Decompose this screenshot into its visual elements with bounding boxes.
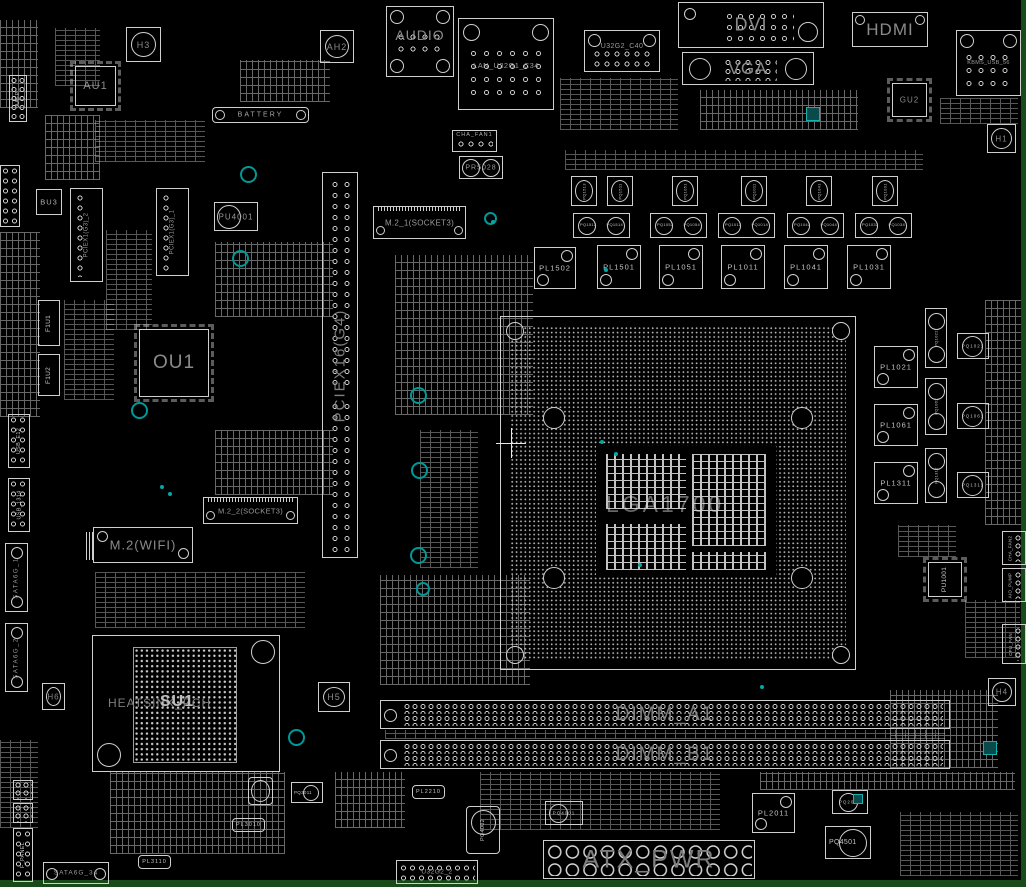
hole-mark xyxy=(532,24,549,41)
hole-mark xyxy=(689,58,711,80)
hole-mark xyxy=(482,159,500,177)
pin-grid xyxy=(723,58,777,81)
component-cluster xyxy=(700,90,858,130)
screw-hole-icon xyxy=(325,35,349,58)
inductor-pl1061: PL1061 xyxy=(874,404,918,446)
edge-header xyxy=(0,165,20,227)
component-cluster xyxy=(385,730,945,739)
component-cluster xyxy=(420,430,478,568)
hole-mark xyxy=(436,10,450,24)
component-cluster xyxy=(940,98,1018,124)
front-usb3-header: U32G2_2 xyxy=(396,860,478,884)
sata6g-1-connector: SATA6G_1 xyxy=(5,543,28,612)
hole-mark xyxy=(384,709,397,722)
hole-mark xyxy=(860,217,878,235)
pin-grid xyxy=(395,31,445,57)
dvi-connector: DVI xyxy=(678,2,824,48)
inductor-pl1021: PL1021 xyxy=(874,346,918,388)
pciex1-slot-1-label: PCIEX1(G3)_1 xyxy=(170,210,176,255)
inductor-label: PL1061 xyxy=(875,421,917,430)
hole-mark xyxy=(463,24,480,41)
hole-mark xyxy=(390,59,404,73)
via-marker xyxy=(614,452,618,456)
component-cluster xyxy=(45,115,100,180)
mounting-hole-h3: H3 xyxy=(126,27,161,62)
hole-mark xyxy=(97,743,121,767)
pin-grid xyxy=(456,139,493,149)
component-cluster xyxy=(64,300,114,400)
hole-mark xyxy=(752,217,770,235)
hole-mark xyxy=(286,511,295,520)
via-marker xyxy=(240,166,257,183)
via-marker xyxy=(410,547,427,564)
pin-grid xyxy=(963,51,1014,89)
hole-mark xyxy=(798,22,818,42)
chip-ou1: OU1 xyxy=(139,329,209,397)
fet-pq1513: PQ1513 xyxy=(571,176,597,206)
pin-grid xyxy=(592,49,652,67)
chip-pq4501: PQ4501 xyxy=(825,826,871,859)
via-marker xyxy=(232,250,249,267)
chip-f1u1-label: F1U1 xyxy=(45,314,52,331)
battery-connector: BATTERY xyxy=(212,107,309,123)
screw-hole-icon xyxy=(46,687,61,706)
hole-mark xyxy=(792,217,810,235)
hole-mark xyxy=(962,406,983,427)
capacitor-array xyxy=(692,552,766,570)
component-cluster xyxy=(55,28,100,86)
hole-mark xyxy=(46,868,58,880)
hole-mark xyxy=(454,226,463,235)
bead-pl3110: PL3110 xyxy=(138,855,171,869)
pin-grid xyxy=(86,532,94,560)
component-cluster xyxy=(110,772,285,854)
fet-pq1011: PQ1011 xyxy=(741,176,767,206)
screw-hole-icon xyxy=(131,32,156,57)
hole-mark xyxy=(877,373,889,385)
hole-mark xyxy=(588,34,601,47)
aio-pump-header: AIO_PUMP xyxy=(1002,568,1026,602)
component-cluster xyxy=(890,690,998,768)
fet-label: PQ1312 xyxy=(933,467,938,483)
capacitor-array xyxy=(606,454,686,509)
inductor-label: PL1031 xyxy=(848,263,890,272)
hole-mark xyxy=(626,248,638,260)
pin-grid xyxy=(724,11,794,43)
chip-pu4001: PU4001 xyxy=(214,202,258,231)
chip-bu3: BU3 xyxy=(36,189,62,215)
hole-mark xyxy=(206,511,215,520)
hole-mark xyxy=(217,205,241,229)
usb-e12-header: USB_E12 xyxy=(8,414,30,468)
inductor-label: PL1051 xyxy=(660,263,702,272)
mounting-hole-h1: H1 xyxy=(987,124,1016,153)
hole-mark xyxy=(684,217,702,235)
component-cluster xyxy=(898,525,956,557)
hole-mark xyxy=(903,407,915,419)
hole-mark xyxy=(376,226,385,235)
hole-mark xyxy=(855,15,865,25)
pcb-board: AAFP AU1 H3 BATTERY AH2 AUDIO LAN_U32G1_… xyxy=(0,0,1021,880)
aio-pump-label: AIO_PUMP xyxy=(1008,572,1013,598)
chip-pr5028: PR5028 xyxy=(459,156,503,179)
bead-pl2210: PL2210 xyxy=(412,785,445,799)
hole-mark xyxy=(724,274,736,286)
component-cluster xyxy=(565,150,923,170)
kbms-usb-connector: KBMS_USB_56 xyxy=(956,30,1021,96)
inductor-label: PL1041 xyxy=(785,263,827,272)
pin-grid xyxy=(403,703,943,714)
via-marker xyxy=(600,440,604,444)
hole-mark xyxy=(813,248,825,260)
usb-1314-label: USB_1314 xyxy=(16,490,22,519)
pciex16-label: PCIEX16(G4) xyxy=(332,308,349,422)
hole-mark xyxy=(787,274,799,286)
fet-label: PQ1022 xyxy=(933,330,938,346)
hole-mark xyxy=(839,829,867,857)
inductor-label: PL1502 xyxy=(535,264,575,273)
chip-f1u1: F1U1 xyxy=(38,300,60,346)
hole-mark xyxy=(303,785,319,801)
hole-mark xyxy=(215,110,225,120)
hole-mark xyxy=(903,465,915,477)
m2-1-slot: M.2_1(SOCKET3) xyxy=(373,206,466,239)
component-cluster xyxy=(0,740,38,828)
pciex1-slot-1: PCIEX1(G3)_1 xyxy=(156,188,189,276)
inductor-label: PL1021 xyxy=(875,363,917,372)
hole-mark xyxy=(390,10,404,24)
pin-grid xyxy=(208,498,293,502)
hole-mark xyxy=(780,796,792,808)
pin-grid xyxy=(467,47,545,103)
hole-mark xyxy=(600,274,612,286)
chip-f1u2-label: F1U2 xyxy=(45,366,52,383)
hole-mark xyxy=(850,274,862,286)
inductor-pl1311: PL1311 xyxy=(874,462,918,504)
chip-f1u2: F1U2 xyxy=(38,354,60,396)
inductor-label: PL1311 xyxy=(875,479,917,488)
dimm-b1-slot: DIMM_B1 xyxy=(380,740,950,769)
component-cluster xyxy=(900,812,1018,876)
via-marker xyxy=(411,462,428,479)
hole-mark xyxy=(877,431,889,443)
usb-e12-label: USB_E12 xyxy=(16,428,22,454)
component-cluster xyxy=(965,600,1020,658)
hole-mark xyxy=(832,322,850,340)
fet-pair-pq1062-pq1064: PQ1062 xyxy=(925,378,947,435)
hole-mark xyxy=(436,59,450,73)
inductor-label: PL1011 xyxy=(722,263,764,272)
hole-mark xyxy=(384,749,397,762)
via-marker xyxy=(410,387,427,404)
fet-label: PQ1051 xyxy=(682,183,687,199)
hdmi-connector: HDMI xyxy=(852,12,928,47)
hole-mark xyxy=(94,868,106,880)
component-cluster xyxy=(480,772,720,830)
pin-grid xyxy=(399,863,475,881)
pin-grid xyxy=(403,755,943,766)
hole-mark xyxy=(962,475,983,496)
hole-mark xyxy=(643,34,656,47)
fet-pq1511: PQ1511 xyxy=(607,176,633,206)
fet-pq1051: PQ1051 xyxy=(672,176,698,206)
chip-gu2: GU2 xyxy=(892,83,927,117)
socket-cavity: LGA1700 xyxy=(596,446,776,576)
hole-mark xyxy=(688,248,700,260)
fet-pair-pq1032-pq1034: PQ1032PQ1034 xyxy=(855,213,912,238)
pin-grid xyxy=(403,743,943,754)
chip-gu2-label: GU2 xyxy=(893,96,926,105)
inductor-pl1041: PL1041 xyxy=(784,245,828,289)
usb-1314-header: USB_1314 xyxy=(8,478,30,532)
component-cluster xyxy=(760,772,1015,790)
component-cluster xyxy=(0,232,40,417)
via-marker xyxy=(604,268,608,272)
sata6g-1-label: SATA6G_1 xyxy=(14,557,20,598)
component-cluster xyxy=(335,772,405,828)
hole-mark xyxy=(578,217,596,235)
pciex16-slot: PCIEX16(G4) xyxy=(322,172,358,558)
inductor-pl1502: PL1502 xyxy=(534,247,576,289)
fet-pair-pq1022-pq1024: PQ1022 xyxy=(925,308,947,368)
inductor-pl2011: PL2011 xyxy=(752,793,795,833)
fet-label: PQ1041 xyxy=(816,183,821,199)
component-cluster xyxy=(560,78,678,130)
mounting-hole-ah2: AH2 xyxy=(320,30,354,63)
hole-mark xyxy=(791,407,813,429)
fet-label: PQ1062 xyxy=(933,398,938,414)
bead-pl3110-label: PL3110 xyxy=(139,859,170,865)
chip-pu1001: PU1001 xyxy=(928,562,962,597)
hole-mark xyxy=(889,217,907,235)
m2-wifi-label: M.2(WIFI) xyxy=(94,538,192,553)
cha-fan1-header: CHA_FAN1 xyxy=(452,130,497,152)
teal-component xyxy=(983,741,997,755)
hole-mark xyxy=(876,248,888,260)
sata6g-34-connector: SATA6G_34 xyxy=(43,862,109,884)
hole-mark xyxy=(821,217,839,235)
fet-pq1041: PQ1041 xyxy=(806,176,832,206)
fet-pair-pq1512-pq1514: PQ1512PQ1514 xyxy=(573,213,630,238)
pin-grid xyxy=(546,843,752,876)
hole-mark xyxy=(960,34,974,48)
inductor-pl1011: PL1011 xyxy=(721,245,765,289)
cpu-socket: LGA1700 xyxy=(500,316,856,670)
m2-wifi-slot: M.2(WIFI) xyxy=(93,527,193,563)
hole-mark xyxy=(684,8,696,20)
bead-pl2210-label: PL2210 xyxy=(413,789,444,795)
battery-label: BATTERY xyxy=(213,112,308,119)
m2-1-label: M.2_1(SOCKET3) xyxy=(374,218,465,227)
lan-usb-connector: LAN_U32G1_C34 xyxy=(458,18,554,110)
hole-mark xyxy=(543,567,565,589)
usb-c-connector: U32G2_C40 xyxy=(584,30,660,72)
mounting-hole-h5: H5 xyxy=(318,682,350,712)
fet-label: PQ1031 xyxy=(882,183,887,199)
component-cluster xyxy=(215,430,333,495)
via-marker xyxy=(288,729,305,746)
sata6g-2-label: SATA6G_2 xyxy=(14,637,20,678)
hole-mark xyxy=(1003,34,1017,48)
fet-label: PQ1011 xyxy=(752,183,757,199)
hole-mark xyxy=(962,336,983,357)
teal-component xyxy=(853,794,863,804)
fet-pair-pq1042-pq1044: PQ1042PQ1044 xyxy=(787,213,844,238)
cha-fan1-label: CHA_FAN1 xyxy=(453,132,496,138)
via-marker xyxy=(168,492,172,496)
via-marker xyxy=(131,402,148,419)
sata6g-2-connector: SATA6G_2 xyxy=(5,623,28,692)
via-marker xyxy=(491,220,495,224)
dimm-a1-slot: DIMM_A1 xyxy=(380,700,950,729)
vga-connector: VGA xyxy=(682,52,814,85)
screw-hole-icon xyxy=(991,128,1012,149)
pcb-layout-diagram: AAFP AU1 H3 BATTERY AH2 AUDIO LAN_U32G1_… xyxy=(0,0,1026,887)
hole-mark xyxy=(543,407,565,429)
crosshair-marker xyxy=(511,428,512,458)
component-cluster xyxy=(0,20,38,108)
hole-mark xyxy=(655,217,673,235)
m2-2-slot: M.2_2(SOCKET3) xyxy=(203,497,298,524)
hole-mark xyxy=(832,646,850,664)
inductor-pl2011-label: PL2011 xyxy=(753,809,794,818)
hole-mark xyxy=(178,548,189,559)
atx-power-connector: ATX_PWR xyxy=(543,840,755,879)
fet-pq3011: PQ3011 xyxy=(291,782,323,803)
hole-mark xyxy=(462,159,480,177)
hole-mark xyxy=(750,248,762,260)
pciex1-slot-2-label: PCIEX1(G3)_2 xyxy=(84,213,90,258)
fet-label: PQ1513 xyxy=(581,183,586,199)
audio-jack-connector: AUDIO xyxy=(386,6,454,77)
hole-mark xyxy=(723,217,741,235)
chip-bu3-label: BU3 xyxy=(37,198,61,207)
cha-fan2-label: CHA_FAN2 xyxy=(1008,535,1013,561)
mounting-hole-h6: H6 xyxy=(42,683,65,710)
hole-mark xyxy=(251,640,275,664)
fet-pair-pq1052-pq1054: PQ1052PQ1054 xyxy=(650,213,707,238)
via-marker xyxy=(416,582,430,596)
pin-grid xyxy=(403,715,943,726)
hole-mark xyxy=(607,217,625,235)
hole-mark xyxy=(877,489,889,501)
hole-mark xyxy=(662,274,674,286)
cha-fan2-header: CHA_FAN2 xyxy=(1002,531,1026,565)
component-cluster xyxy=(240,60,330,102)
screw-hole-icon xyxy=(323,687,345,707)
hole-mark xyxy=(296,110,306,120)
fet-pair-pq1012-pq1014: PQ1012PQ1014 xyxy=(718,213,775,238)
component-cluster xyxy=(95,120,205,162)
hole-mark xyxy=(903,349,915,361)
component-cluster xyxy=(380,575,530,685)
front-panel-header: F_PANEL xyxy=(13,828,33,882)
teal-component xyxy=(806,107,820,121)
m2-2-label: M.2_2(SOCKET3) xyxy=(204,506,297,515)
pciex1-slot-2: PCIEX1(G3)_2 xyxy=(70,188,103,282)
fet-pair-pq1312-pq1314: PQ1312 xyxy=(925,448,947,503)
inductor-pl1031: PL1031 xyxy=(847,245,891,289)
hole-mark xyxy=(915,15,925,25)
hole-mark xyxy=(97,531,108,542)
pin-grid xyxy=(378,207,461,211)
via-marker xyxy=(760,685,764,689)
inductor-pl1501: PL1501 xyxy=(597,245,641,289)
via-marker xyxy=(638,563,642,567)
hole-mark xyxy=(791,567,813,589)
via-marker xyxy=(160,485,164,489)
pch-bga-grid xyxy=(133,647,237,763)
fet-label: PQ1511 xyxy=(618,183,623,199)
component-cluster xyxy=(95,572,305,628)
hole-mark xyxy=(537,274,549,286)
fet-pq1031: PQ1031 xyxy=(872,176,898,206)
hole-mark xyxy=(755,818,767,830)
component-cluster xyxy=(985,300,1021,525)
inductor-pl1051: PL1051 xyxy=(659,245,703,289)
capacitor-array xyxy=(606,524,686,570)
capacitor-array xyxy=(692,454,766,546)
chip-ou1-label: OU1 xyxy=(140,352,208,374)
chip-pu1001-label: PU1001 xyxy=(941,567,948,592)
hole-mark xyxy=(561,250,573,262)
front-panel-label: F_PANEL xyxy=(20,842,26,868)
hole-mark xyxy=(785,58,807,80)
